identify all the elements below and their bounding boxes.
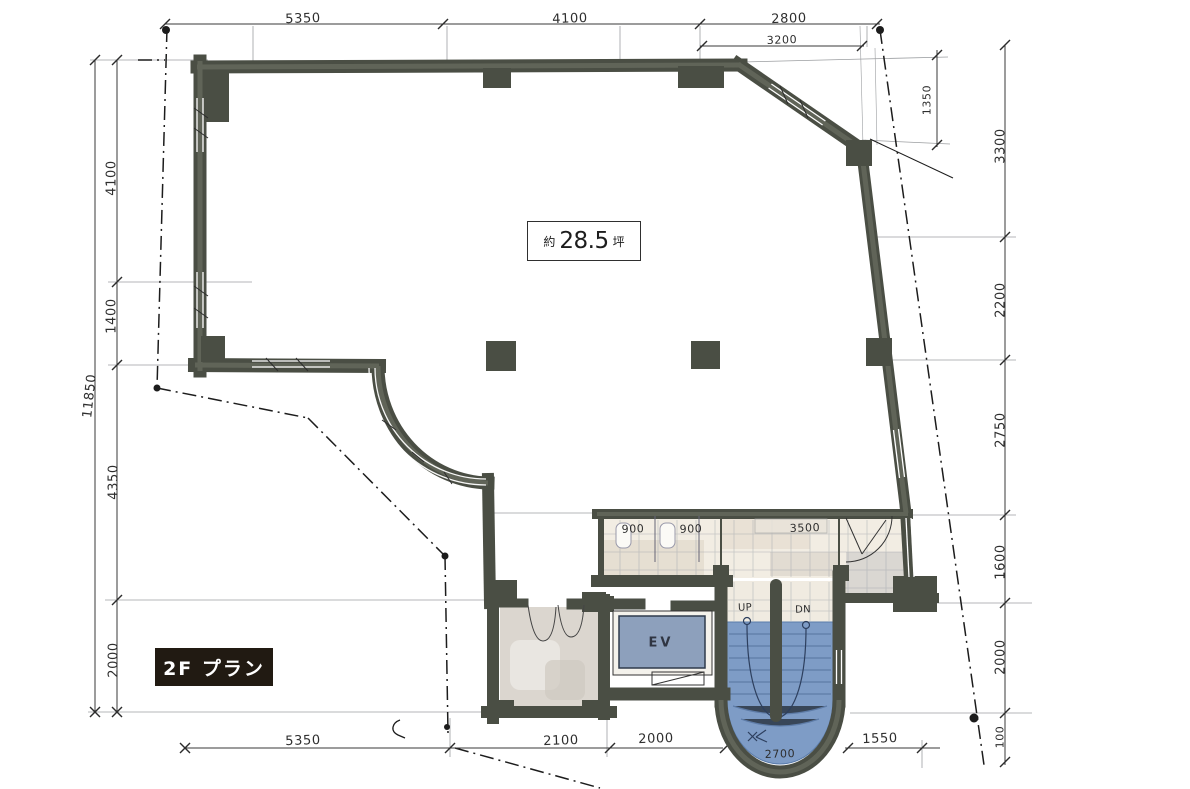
dim-bottom-1: 5350 — [285, 733, 321, 749]
dim-top-offset: 3200 — [767, 33, 798, 47]
elevator-label: EV — [649, 636, 674, 651]
dim-top-2: 4100 — [552, 11, 588, 27]
area-value: 28.5 — [559, 228, 608, 254]
area-note: 約 28.5 坪 — [527, 221, 641, 261]
dim-right-2: 2200 — [994, 282, 1009, 317]
dim-right-5: 2000 — [994, 639, 1009, 674]
dim-left-1: 4100 — [105, 160, 120, 195]
tile-floor — [602, 519, 906, 623]
dim-right-3: 2750 — [994, 412, 1009, 447]
dim-top-1: 5350 — [285, 11, 321, 27]
dim-washroom-1: 900 — [621, 522, 644, 536]
stair-up-label: UP — [738, 602, 752, 613]
dim-washroom-3: 3500 — [790, 521, 821, 535]
dim-left-4: 2000 — [107, 642, 122, 677]
dim-stair-width: 2700 — [765, 747, 796, 761]
dim-top-right-drop: 1350 — [921, 85, 934, 115]
dim-top-3: 2800 — [771, 11, 807, 27]
dim-bottom-3: 2000 — [638, 731, 674, 747]
toilet-2 — [660, 523, 675, 548]
area-prefix: 約 — [543, 233, 555, 250]
dim-left-3: 4350 — [107, 464, 122, 499]
dim-right-1: 3300 — [994, 128, 1009, 163]
dim-bottom-2: 2100 — [543, 733, 579, 749]
dim-left-2: 1400 — [105, 298, 120, 333]
dim-right-4: 1600 — [994, 544, 1009, 579]
floor-plan-page: 5350 4100 2800 3200 1350 3300 2200 2750 … — [0, 0, 1190, 789]
floor-tag: 2F プラン — [155, 648, 273, 686]
stair-down-label: DN — [795, 604, 811, 616]
dim-right-6: 100 — [994, 726, 1007, 749]
area-unit: 坪 — [613, 233, 625, 250]
dim-bottom-4: 1550 — [862, 731, 898, 747]
storage-room-floor — [500, 607, 598, 709]
dim-washroom-2: 900 — [679, 522, 702, 536]
